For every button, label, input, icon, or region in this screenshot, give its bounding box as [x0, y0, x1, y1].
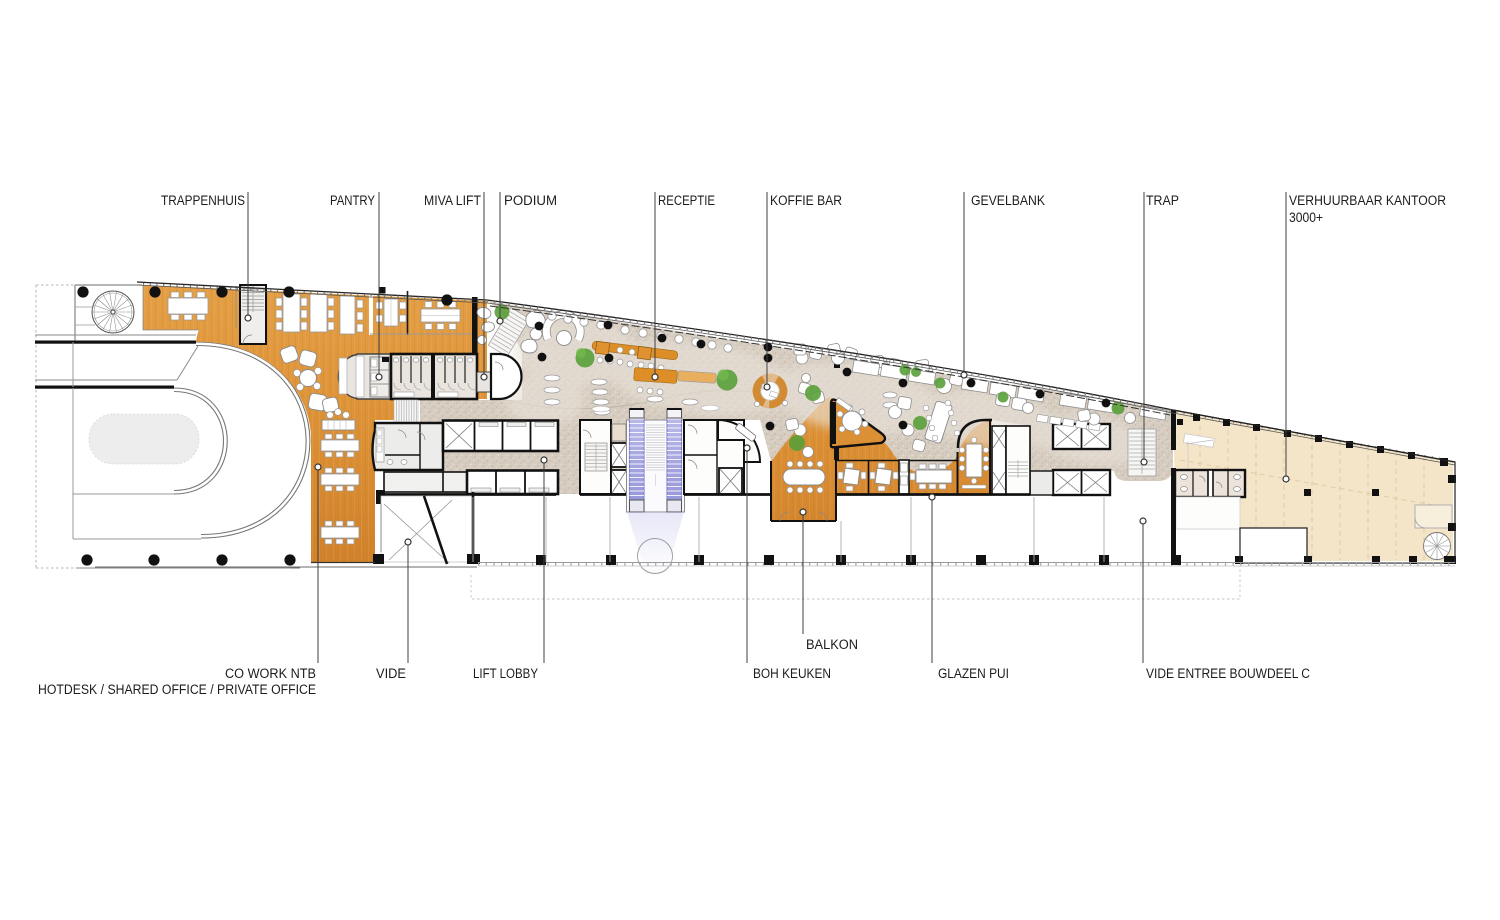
- svg-text:PODIUM: PODIUM: [504, 193, 557, 208]
- svg-text:BALKON: BALKON: [806, 637, 858, 652]
- svg-text:CO WORK NTB: CO WORK NTB: [225, 666, 316, 681]
- svg-text:LIFT LOBBY: LIFT LOBBY: [473, 666, 538, 681]
- svg-text:HOTDESK / SHARED OFFICE / PRIV: HOTDESK / SHARED OFFICE / PRIVATE OFFICE: [38, 682, 316, 697]
- svg-text:TRAPPENHUIS: TRAPPENHUIS: [161, 193, 245, 208]
- svg-text:PANTRY: PANTRY: [330, 193, 375, 208]
- svg-text:RECEPTIE: RECEPTIE: [658, 193, 715, 208]
- svg-text:VIDE: VIDE: [376, 666, 406, 681]
- svg-text:TRAP: TRAP: [1146, 193, 1179, 208]
- svg-text:MIVA LIFT: MIVA LIFT: [424, 193, 481, 208]
- svg-text:KOFFIE BAR: KOFFIE BAR: [770, 193, 842, 208]
- svg-text:VERHUURBAAR KANTOOR: VERHUURBAAR KANTOOR: [1289, 193, 1446, 208]
- svg-text:VIDE ENTREE BOUWDEEL C: VIDE ENTREE BOUWDEEL C: [1146, 666, 1310, 681]
- svg-text:BOH KEUKEN: BOH KEUKEN: [753, 666, 831, 681]
- svg-text:3000+: 3000+: [1289, 210, 1323, 225]
- svg-text:GLAZEN PUI: GLAZEN PUI: [938, 666, 1009, 681]
- svg-text:GEVELBANK: GEVELBANK: [971, 193, 1045, 208]
